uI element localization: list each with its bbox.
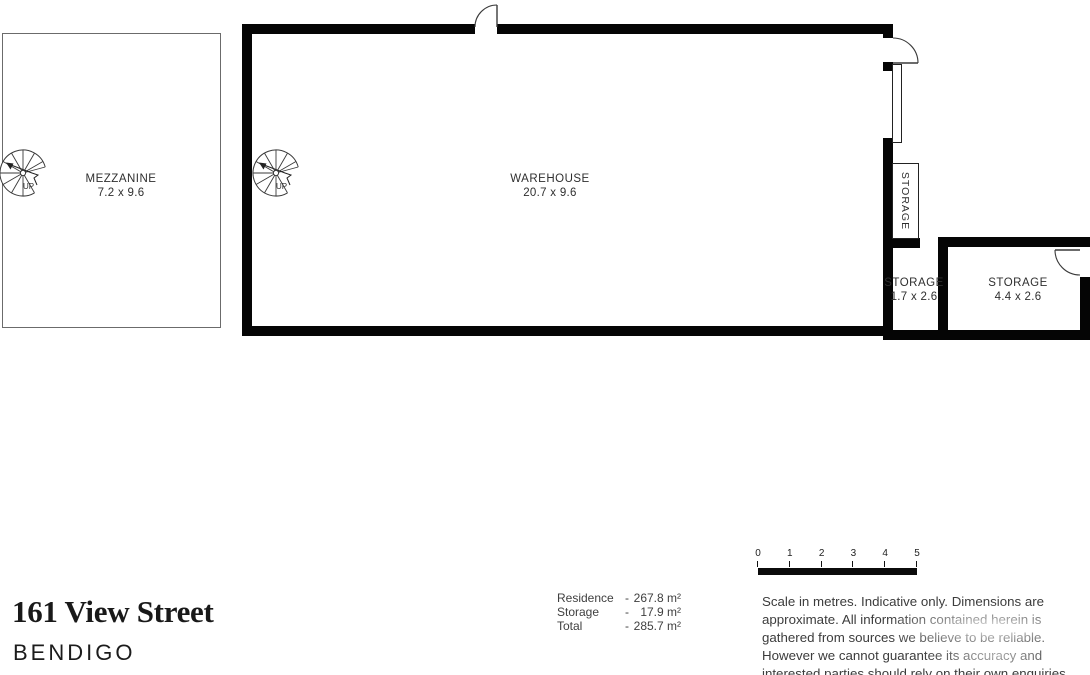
room-name: STORAGE	[958, 276, 1078, 290]
disclaimer-line: However we cannot guarantee its accuracy…	[762, 647, 1090, 665]
room-dims: 7.2 x 9.6	[41, 186, 201, 200]
area-dash: -	[625, 605, 629, 619]
area-dash: -	[625, 591, 629, 605]
room-dims: 4.4 x 2.6	[958, 290, 1078, 304]
window-symbol	[892, 64, 902, 143]
area-value: 285.7 m²	[634, 619, 681, 633]
scale-tick-mark	[821, 561, 822, 567]
scale-bar: 0 1 2 3 4 5	[758, 548, 928, 578]
room-name: MEZZANINE	[41, 172, 201, 186]
scale-bar-line	[758, 568, 917, 575]
stairs-up-label: UP	[23, 182, 34, 191]
scale-tick-mark	[884, 561, 885, 567]
scale-tick-label: 5	[914, 548, 920, 559]
scale-tick-label: 3	[851, 548, 857, 559]
area-summary: Residence -267.8 m² Storage -17.9 m² Tot…	[557, 591, 687, 633]
room-name: STORAGE	[874, 276, 954, 290]
scale-tick-mark	[757, 561, 758, 567]
scale-tick-mark	[789, 561, 790, 567]
wall-top-right	[497, 24, 893, 34]
scale-tick-label: 4	[882, 548, 888, 559]
address-street: 161 View Street	[12, 594, 214, 630]
area-row: Storage -17.9 m²	[557, 605, 687, 619]
area-label: Residence	[557, 591, 625, 605]
scale-tick-mark	[916, 561, 917, 567]
scale-tick-label: 0	[755, 548, 761, 559]
spiral-staircase-icon: UP	[0, 147, 49, 199]
disclaimer-line: interested parties should rely on their …	[762, 665, 1090, 675]
disclaimer-text: Scale in metres. Indicative only. Dimens…	[762, 593, 1090, 675]
area-label: Total	[557, 619, 625, 633]
room-name: WAREHOUSE	[470, 172, 630, 186]
area-label: Storage	[557, 605, 625, 619]
room-label-warehouse: WAREHOUSE 20.7 x 9.6	[470, 172, 630, 200]
area-row: Total -285.7 m²	[557, 619, 687, 633]
spiral-staircase-icon: UP	[250, 147, 302, 199]
door-right-swing-icon	[885, 30, 925, 70]
area-value: 267.8 m²	[634, 591, 681, 605]
disclaimer-line: approximate. All information contained h…	[762, 611, 1090, 629]
wall-storage-small-top	[883, 238, 920, 248]
area-value: 17.9 m²	[640, 605, 681, 619]
disclaimer-line: gathered from sources we believe to be r…	[762, 629, 1090, 647]
room-dims: 20.7 x 9.6	[470, 186, 630, 200]
scale-tick-mark	[852, 561, 853, 567]
room-dims: 1.7 x 2.6	[874, 290, 954, 304]
room-label-storage-small: STORAGE 1.7 x 2.6	[874, 276, 954, 304]
door-top-swing-icon	[470, 0, 504, 34]
floor-plan-page: MEZZANINE 7.2 x 9.6 STORAGE	[0, 0, 1090, 675]
area-row: Residence -267.8 m²	[557, 591, 687, 605]
disclaimer-line: Scale in metres. Indicative only. Dimens…	[762, 593, 1090, 611]
scale-tick-label: 1	[787, 548, 793, 559]
area-dash: -	[625, 619, 629, 633]
storage-closet-label: STORAGE	[892, 163, 918, 238]
stairs-up-label: UP	[276, 182, 287, 191]
scale-tick-label: 2	[819, 548, 825, 559]
room-label-mezzanine: MEZZANINE 7.2 x 9.6	[41, 172, 201, 200]
wall-bottom-storage	[883, 330, 1090, 340]
room-name: STORAGE	[899, 171, 911, 229]
address-suburb: BENDIGO	[13, 640, 135, 666]
room-label-storage-large: STORAGE 4.4 x 2.6	[958, 276, 1078, 304]
wall-top-left	[242, 24, 475, 34]
wall-bottom-warehouse	[242, 326, 893, 336]
